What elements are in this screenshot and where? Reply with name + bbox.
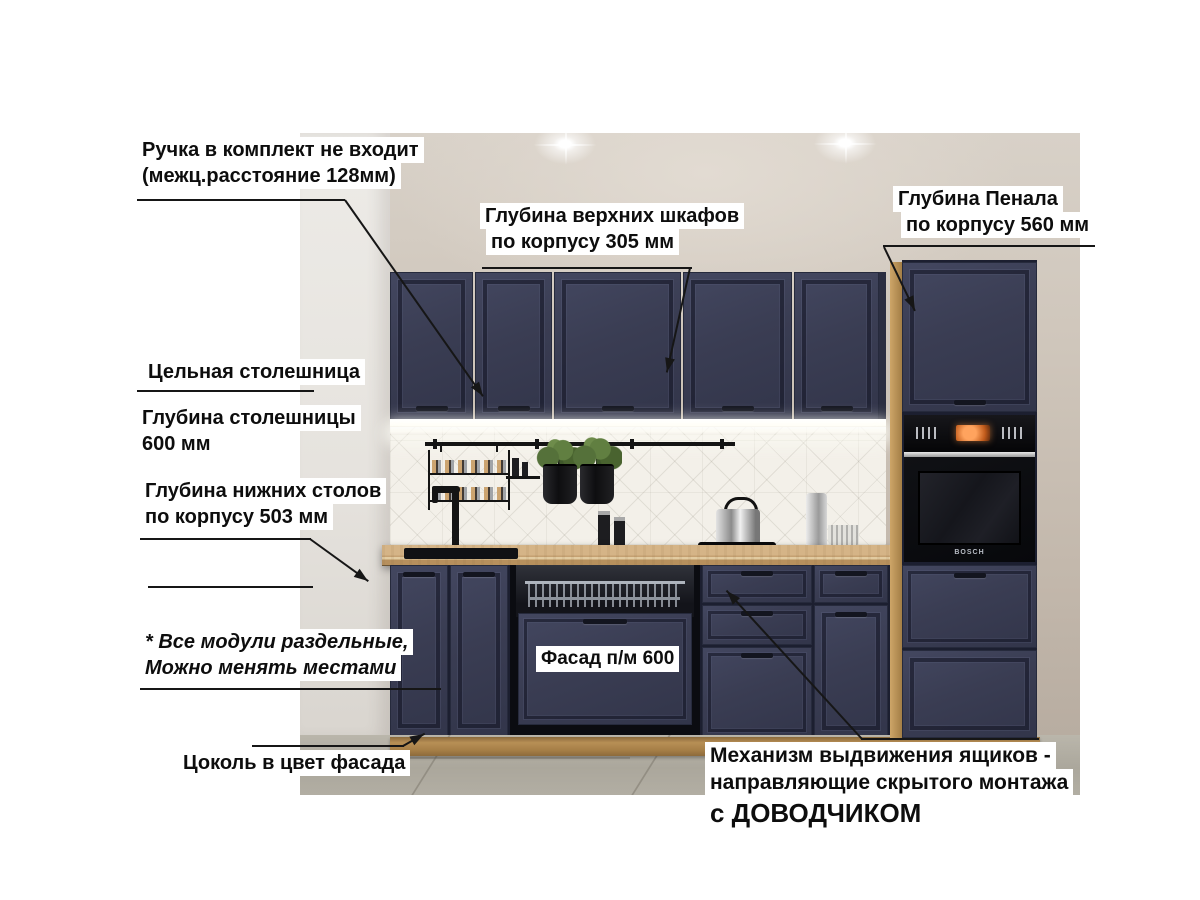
annotation-plinth: Цоколь в цвет фасада	[178, 750, 410, 776]
cabinet-handle	[821, 406, 853, 411]
annotation-text: направляющие скрытого монтажа	[705, 769, 1073, 796]
annotation-text: * Все модули раздельные,	[140, 629, 413, 655]
upper-cabinet-side	[879, 272, 886, 420]
penal-drawer	[902, 565, 1037, 648]
upper-cabinet-door	[794, 272, 879, 420]
pointer-line	[137, 390, 314, 392]
annotation-handle-note: Ручка в комплект не входит (межц.расстоя…	[137, 137, 424, 189]
cabinet-handle	[602, 406, 634, 411]
rack-shelf	[430, 473, 508, 475]
top-drawer	[814, 565, 888, 603]
hanging-pot	[580, 464, 614, 504]
pointer-line	[883, 245, 1095, 247]
annotation-text: Глубина столешницы	[137, 405, 361, 431]
cabinet-handle	[722, 406, 754, 411]
annotation-facade: Фасад п/м 600	[536, 646, 679, 672]
ceiling-light	[810, 133, 880, 166]
rack-shelf	[430, 500, 508, 502]
upper-cabinet-door	[683, 272, 792, 420]
annotation-upper-depth: Глубина верхних шкафов по корпусу 305 мм	[480, 203, 744, 255]
cabinet-handle	[416, 406, 448, 411]
spice-rack	[428, 450, 510, 510]
cabinet-handle	[463, 572, 495, 577]
rail-mount	[433, 439, 437, 449]
annotation-text: 600 мм	[137, 431, 216, 457]
rail-mount	[720, 439, 724, 449]
oven-control-panel	[904, 415, 1035, 452]
annotation-text: Ручка в комплект не входит	[137, 137, 424, 163]
cabinet-handle	[741, 653, 773, 658]
mini-shelf	[506, 476, 540, 479]
pointer-line	[861, 738, 1039, 740]
annotation-text: Глубина Пенала	[893, 186, 1063, 212]
faucet-tip	[432, 486, 438, 503]
pointer-line	[140, 688, 441, 690]
spice-jars	[432, 460, 506, 473]
annotation-base-depth: Глубина нижних столов по корпусу 503 мм	[140, 478, 386, 530]
cabinet-handle	[954, 573, 986, 578]
annotation-text: по корпусу 503 мм	[140, 504, 333, 530]
annotation-text: Глубина нижних столов	[140, 478, 386, 504]
annotation-worktop-solid: Цельная столешница	[143, 359, 365, 385]
cabinet-handle	[835, 571, 867, 576]
hanging-pot	[543, 464, 577, 504]
annotation-text: Можно менять местами	[140, 655, 401, 681]
bottom-drawer	[702, 647, 812, 738]
pointer-line	[137, 199, 345, 201]
annotation-text: Глубина верхних шкафов	[480, 203, 744, 229]
annotation-mechanism: Механизм выдвижения ящиков - направляющи…	[705, 742, 1073, 830]
rail-mount	[630, 439, 634, 449]
annotated-kitchen-diagram: BOSCH Ручка в комплект не входит (межц.р…	[0, 0, 1200, 900]
annotation-text: Механизм выдвижения ящиков -	[705, 742, 1056, 769]
kettle	[716, 509, 760, 546]
pointer-line	[148, 586, 313, 588]
cabinet-handle	[741, 571, 773, 576]
pointer-line	[482, 267, 692, 269]
penal-upper-door	[902, 262, 1037, 412]
cutting-board	[806, 493, 827, 551]
annotation-text: по корпусу 560 мм	[901, 212, 1094, 238]
penal-lower-door	[902, 650, 1037, 738]
annotation-worktop-depth: Глубина столешницы 600 мм	[137, 405, 361, 457]
base-cabinet-door	[814, 605, 888, 738]
annotation-text: (межц.расстояние 128мм)	[137, 163, 401, 189]
sink	[404, 548, 518, 559]
bottle	[522, 462, 528, 476]
annotation-text: с ДОВОДЧИКОМ	[705, 796, 926, 830]
cabinet-handle	[583, 619, 627, 624]
oven-door: BOSCH	[904, 457, 1035, 562]
pointer-line	[252, 745, 404, 747]
dishwasher-rack	[530, 597, 680, 600]
ceiling-light	[530, 133, 600, 167]
top-drawer	[702, 565, 812, 603]
bottle	[512, 458, 519, 476]
base-cabinet-door	[450, 565, 508, 736]
oven-brand-logo: BOSCH	[904, 549, 1035, 556]
upper-cabinet-door	[554, 272, 681, 420]
cabinet-handle	[498, 406, 530, 411]
led-glow	[390, 427, 886, 435]
faucet-body	[452, 488, 459, 548]
upper-cabinet-door	[390, 272, 473, 420]
annotation-penal-depth: Глубина Пенала по корпусу 560 мм	[893, 186, 1094, 238]
annotation-text: по корпусу 305 мм	[486, 229, 679, 255]
upper-cabinet-door	[475, 272, 552, 420]
annotation-text: Цельная столешница	[143, 359, 365, 385]
penal-side-panel	[890, 262, 902, 738]
annotation-modules-note: * Все модули раздельные, Можно менять ме…	[140, 629, 413, 681]
tall-cabinet-penal: BOSCH	[902, 260, 1037, 738]
oven-buttons	[1002, 427, 1024, 439]
cabinet-handle	[403, 572, 435, 577]
annotation-text: Фасад п/м 600	[536, 646, 679, 672]
cabinet-handle	[835, 612, 867, 617]
annotation-text: Цоколь в цвет фасада	[178, 750, 410, 776]
dishwasher-interior	[516, 565, 694, 617]
pointer-line	[140, 538, 311, 540]
oven-display	[956, 425, 990, 441]
oven-buttons	[916, 427, 938, 439]
oven-glass	[918, 471, 1021, 545]
cabinet-handle	[954, 400, 986, 405]
